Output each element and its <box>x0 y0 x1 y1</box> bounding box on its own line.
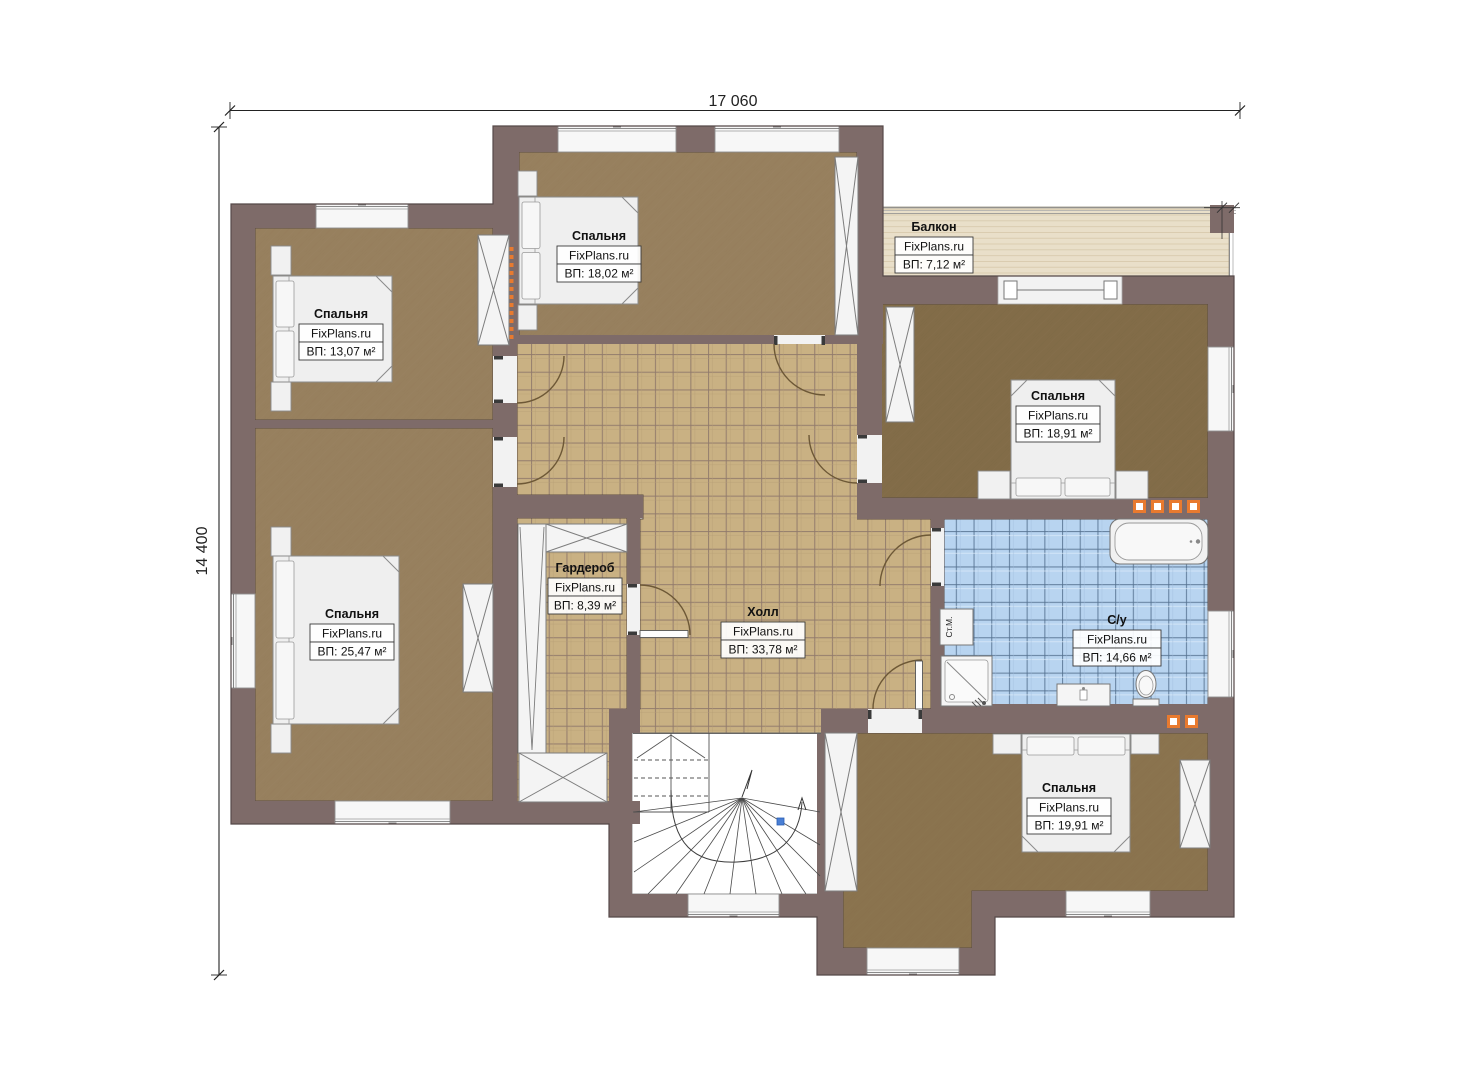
svg-text:FixPlans.ru: FixPlans.ru <box>569 249 629 263</box>
svg-text:ВП: 19,91 м²: ВП: 19,91 м² <box>1035 819 1104 833</box>
svg-text:Гардероб: Гардероб <box>555 561 614 575</box>
svg-text:ВП: 33,78 м²: ВП: 33,78 м² <box>729 643 798 657</box>
svg-text:Балкон: Балкон <box>911 220 956 234</box>
svg-text:ВП: 14,66 м²: ВП: 14,66 м² <box>1083 651 1152 665</box>
svg-text:Спальня: Спальня <box>1042 781 1096 795</box>
svg-text:ВП: 18,02 м²: ВП: 18,02 м² <box>565 267 634 281</box>
svg-text:FixPlans.ru: FixPlans.ru <box>1087 633 1147 647</box>
svg-text:FixPlans.ru: FixPlans.ru <box>733 625 793 639</box>
svg-text:FixPlans.ru: FixPlans.ru <box>1039 801 1099 815</box>
svg-text:FixPlans.ru: FixPlans.ru <box>555 581 615 595</box>
svg-text:Спальня: Спальня <box>325 607 379 621</box>
svg-text:ВП: 13,07 м²: ВП: 13,07 м² <box>307 345 376 359</box>
svg-text:Спальня: Спальня <box>572 229 626 243</box>
svg-text:С/у: С/у <box>1107 613 1127 627</box>
svg-text:ВП: 25,47 м²: ВП: 25,47 м² <box>318 645 387 659</box>
svg-text:FixPlans.ru: FixPlans.ru <box>311 327 371 341</box>
svg-text:FixPlans.ru: FixPlans.ru <box>1028 409 1088 423</box>
svg-text:14 400: 14 400 <box>194 526 211 575</box>
svg-text:17 060: 17 060 <box>709 93 758 110</box>
svg-text:FixPlans.ru: FixPlans.ru <box>322 627 382 641</box>
svg-text:ВП: 7,12 м²: ВП: 7,12 м² <box>903 258 965 272</box>
svg-text:Спальня: Спальня <box>1031 389 1085 403</box>
svg-text:Холл: Холл <box>747 605 778 619</box>
svg-text:ВП: 8,39 м²: ВП: 8,39 м² <box>554 599 616 613</box>
svg-text:Спальня: Спальня <box>314 307 368 321</box>
svg-text:FixPlans.ru: FixPlans.ru <box>904 240 964 254</box>
svg-text:ВП: 18,91 м²: ВП: 18,91 м² <box>1024 427 1093 441</box>
svg-text:Ст.М.: Ст.М. <box>944 617 954 638</box>
